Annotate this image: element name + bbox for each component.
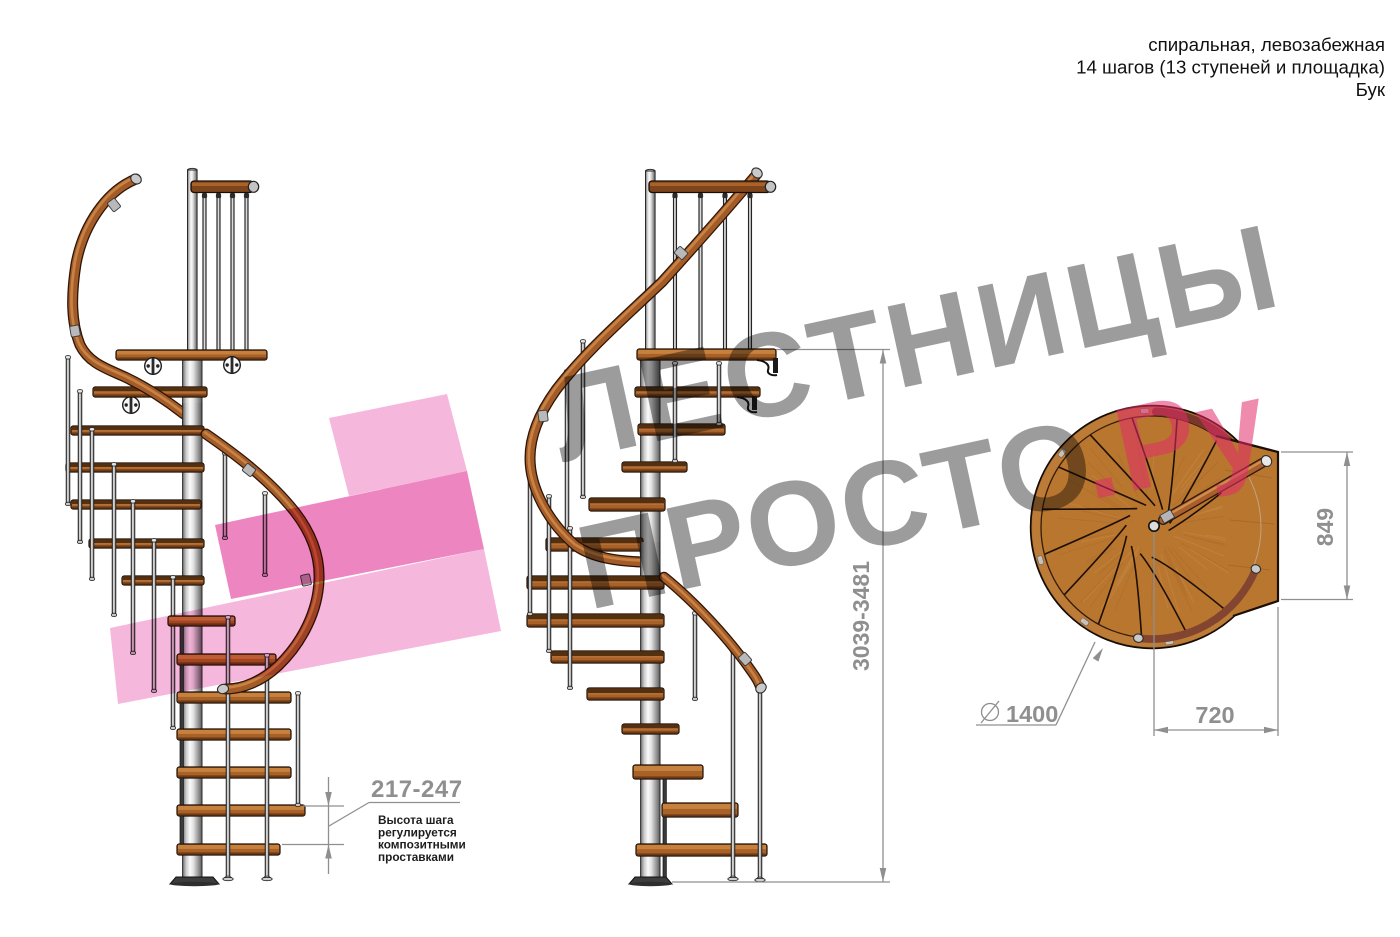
svg-text:849: 849 bbox=[1312, 508, 1338, 546]
svg-text:Высота шагарегулируетсякомпози: Высота шагарегулируетсякомпозитнымипрост… bbox=[378, 813, 466, 864]
svg-text:217-247: 217-247 bbox=[371, 776, 463, 803]
svg-text:1400: 1400 bbox=[1006, 701, 1058, 727]
svg-text:720: 720 bbox=[1195, 702, 1234, 728]
